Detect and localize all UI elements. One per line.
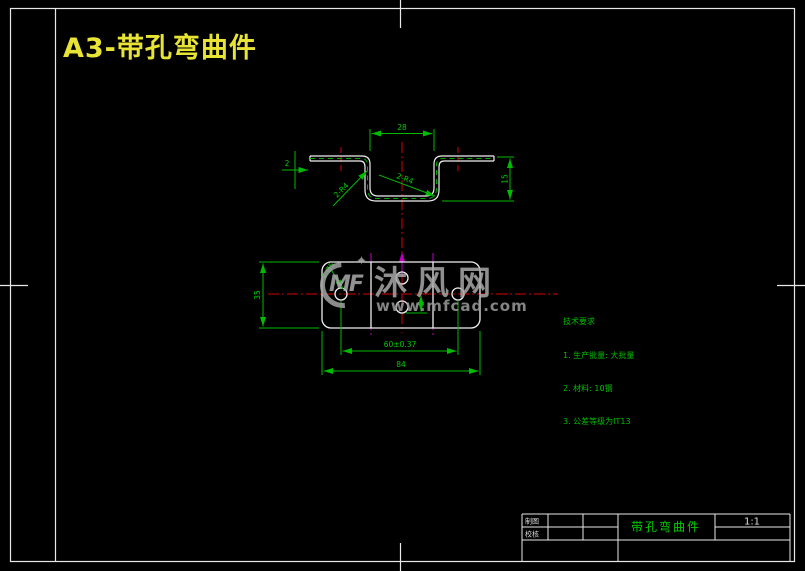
- technical-requirement-item: 2. 材料: 10钢: [563, 383, 634, 394]
- technical-requirements-title: 技术要求: [563, 316, 634, 327]
- cad-sheet: 28 15 2 2-R4 2-R4 4-Ø5 60±0.37 84 35 制图 …: [0, 0, 805, 571]
- mfcad-logo-icon: ✦ MF: [318, 258, 372, 312]
- dimensions: [259, 129, 514, 375]
- title-block-part-name: 带孔弯曲件: [631, 519, 701, 534]
- dim-text-84: 84: [396, 360, 406, 369]
- radius-label-right: 2-R4: [395, 171, 415, 186]
- star-icon: ✦: [356, 254, 367, 269]
- watermark-site-url: www.mfcad.com: [376, 297, 528, 315]
- dim-text-60: 60±0.37: [384, 340, 417, 349]
- dim-text-15: 15: [501, 174, 510, 184]
- dim-text-35: 35: [253, 290, 262, 300]
- technical-requirements: 技术要求 1. 生产批量: 大批量 2. 材料: 10钢 3. 公差等级为IT1…: [563, 294, 634, 449]
- dim-text-28: 28: [397, 123, 407, 132]
- technical-requirement-item: 3. 公差等级为IT13: [563, 416, 634, 427]
- watermark: ✦ MF 沐风网 www.mfcad.com: [318, 256, 558, 320]
- logo-letters: MF: [329, 272, 362, 297]
- title-block-row1-label: 制图: [525, 517, 539, 526]
- title-block-row2-label: 校核: [525, 530, 539, 539]
- dim-text-thickness: 2: [285, 159, 290, 168]
- title-block-scale: 1:1: [744, 517, 760, 528]
- sheet-title: A3-带孔弯曲件: [63, 26, 257, 65]
- technical-requirement-item: 1. 生产批量: 大批量: [563, 350, 634, 361]
